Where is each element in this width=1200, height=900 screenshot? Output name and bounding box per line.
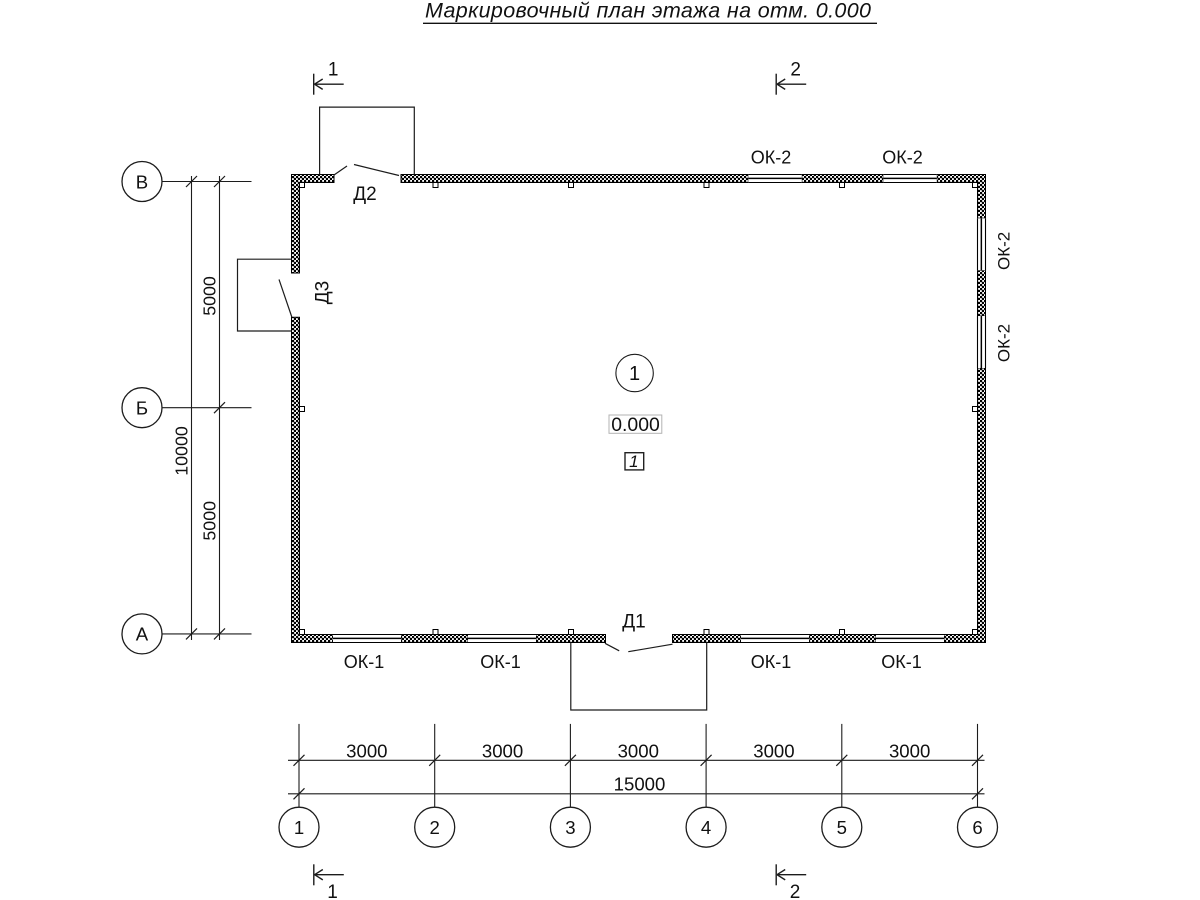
svg-text:3000: 3000 (618, 741, 659, 762)
svg-text:3000: 3000 (482, 741, 523, 762)
svg-text:10000: 10000 (172, 426, 192, 476)
svg-text:ОК-2: ОК-2 (882, 148, 923, 168)
svg-text:Д2: Д2 (353, 184, 376, 205)
svg-text:ОК-2: ОК-2 (751, 148, 792, 168)
svg-text:ОК-1: ОК-1 (751, 652, 792, 672)
svg-text:1: 1 (294, 817, 304, 838)
svg-text:5000: 5000 (200, 276, 220, 316)
svg-text:ОК-1: ОК-1 (881, 652, 922, 672)
svg-text:4: 4 (701, 817, 711, 838)
svg-text:15000: 15000 (614, 773, 666, 794)
svg-text:В: В (136, 171, 148, 192)
svg-text:Д3: Д3 (313, 281, 334, 304)
svg-text:ОК-2: ОК-2 (995, 324, 1014, 362)
svg-text:3000: 3000 (753, 741, 794, 762)
svg-text:ОК-2: ОК-2 (995, 232, 1014, 270)
svg-text:3000: 3000 (889, 741, 930, 762)
svg-text:0.000: 0.000 (611, 414, 660, 436)
svg-text:6: 6 (972, 817, 982, 838)
svg-text:Маркировочный план этажа на от: Маркировочный план этажа на отм. 0.000 (425, 0, 871, 22)
svg-text:1: 1 (328, 60, 339, 81)
svg-text:А: А (136, 624, 149, 645)
svg-text:1: 1 (629, 452, 638, 471)
svg-text:3000: 3000 (346, 741, 387, 762)
svg-text:Б: Б (136, 398, 148, 419)
svg-text:ОК-1: ОК-1 (480, 652, 521, 672)
svg-text:ОК-1: ОК-1 (344, 652, 385, 672)
svg-text:5: 5 (837, 817, 847, 838)
svg-text:2: 2 (430, 817, 440, 838)
svg-text:1: 1 (327, 882, 338, 900)
svg-text:5000: 5000 (200, 501, 220, 541)
svg-text:Д1: Д1 (622, 612, 645, 633)
svg-text:2: 2 (790, 60, 801, 81)
svg-text:3: 3 (565, 817, 575, 838)
svg-text:1: 1 (629, 363, 640, 385)
svg-text:2: 2 (790, 882, 801, 900)
